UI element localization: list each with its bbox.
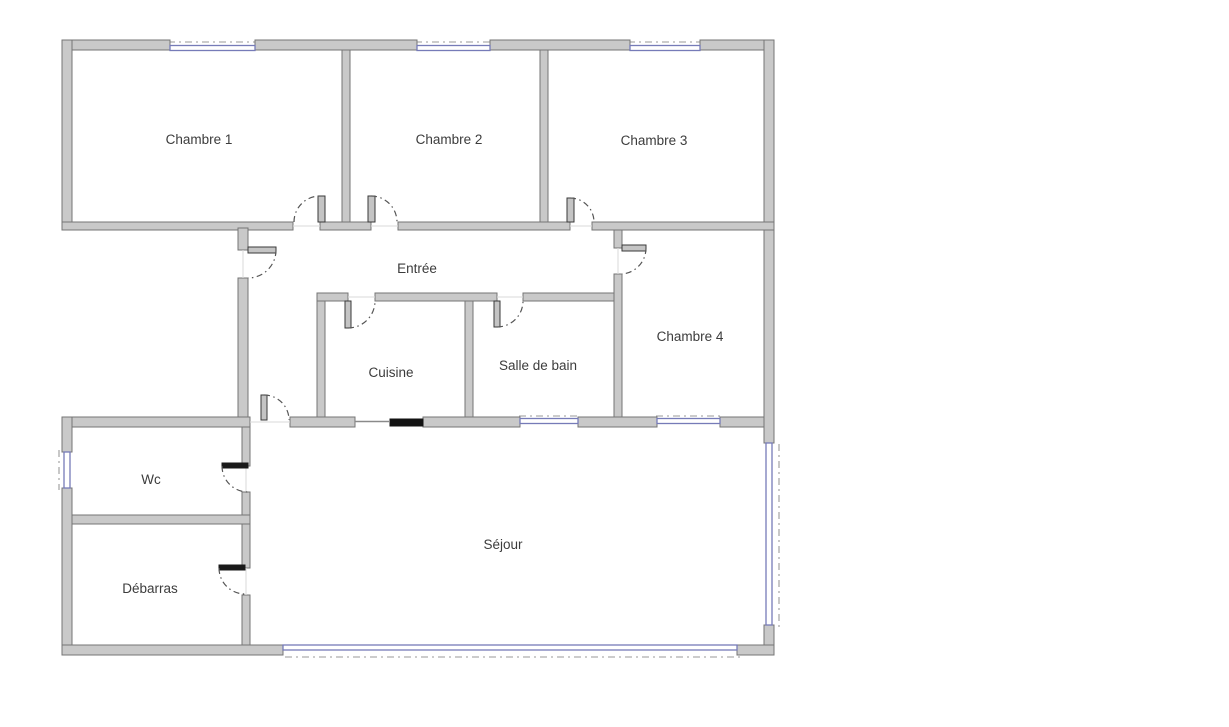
door-arc-sdb <box>497 301 523 327</box>
wall-hall-left-2 <box>238 278 248 417</box>
wall-top-2 <box>255 40 417 50</box>
door-leaf-chambre1 <box>318 196 325 222</box>
wall-left-lower-1 <box>62 417 72 452</box>
doors <box>219 196 646 594</box>
label-chambre-4: Chambre 4 <box>657 329 724 344</box>
door-arc-cuisine <box>348 301 375 328</box>
wall-right-upper <box>764 40 774 443</box>
window-chambre3 <box>630 46 700 51</box>
door-leaf-cuisine <box>345 301 351 328</box>
wall-wc-top <box>62 417 250 427</box>
wall-top-3 <box>490 40 630 50</box>
wall-cuisine-left <box>317 301 325 417</box>
wall-hall-top-3 <box>398 222 570 230</box>
wall-top-1 <box>62 40 170 50</box>
wall-divider-ch2-ch3 <box>540 50 548 222</box>
wall-sejour-top-2 <box>423 417 520 427</box>
wall-kitchen-top-1 <box>317 293 348 301</box>
door-leaf-sejour <box>261 395 267 420</box>
wall-left-upper <box>62 40 72 228</box>
door-leaf-chambre4 <box>622 245 646 251</box>
door-leaf-entrance <box>248 247 276 253</box>
thresholds <box>243 226 618 595</box>
label-salle-de-bain: Salle de bain <box>499 358 577 373</box>
wall-top-4 <box>700 40 774 50</box>
wall-bottom-1 <box>62 645 283 655</box>
door-arc-chambre4 <box>622 248 646 274</box>
wall-bottom-2 <box>737 645 774 655</box>
wall-kitchen-top-3 <box>523 293 614 301</box>
label-sejour: Séjour <box>483 537 523 552</box>
wall-hall-top-1 <box>62 222 293 230</box>
label-chambre-3: Chambre 3 <box>621 133 688 148</box>
door-arc-debarras <box>219 568 245 594</box>
wall-wc-right-1 <box>242 427 250 466</box>
wall-left-lower-2 <box>62 488 72 655</box>
label-wc: Wc <box>141 472 161 487</box>
door-leaf-chambre3 <box>567 198 574 222</box>
floorplan-page: Chambre 1 Chambre 2 Chambre 3 Entrée Cha… <box>0 0 1229 727</box>
door-leaf-sdb <box>494 301 500 327</box>
door-arc-wc <box>222 466 248 492</box>
window-chambre4 <box>657 419 720 424</box>
window-sdb <box>520 419 578 424</box>
wall-divider-ch1-ch2 <box>342 50 350 222</box>
wall-hall-left-1 <box>238 228 248 250</box>
wall-divider-cuisine-sdb <box>465 301 473 417</box>
label-debarras: Débarras <box>122 581 178 596</box>
label-cuisine: Cuisine <box>368 365 413 380</box>
wall-divider-wc-debarras <box>72 515 250 524</box>
wall-hall-top-2 <box>320 222 371 230</box>
wall-debarras-right-2 <box>242 595 250 645</box>
door-leaf-wc <box>222 463 248 468</box>
wall-ch4-left-2 <box>614 274 622 417</box>
label-chambre-1: Chambre 1 <box>166 132 233 147</box>
door-leaf-debarras <box>219 565 245 570</box>
label-chambre-2: Chambre 2 <box>416 132 483 147</box>
label-entree: Entrée <box>397 261 437 276</box>
door-arc-sejour <box>264 395 289 420</box>
window-sejour-bottom <box>283 645 737 650</box>
wall-debarras-right-1 <box>242 524 250 568</box>
window-chambre1 <box>170 46 255 51</box>
window-wc <box>64 452 70 488</box>
window-sejour-right <box>766 443 772 625</box>
wall-sejour-top-1 <box>290 417 355 427</box>
wall-ch4-left-1 <box>614 230 622 248</box>
room-labels: Chambre 1 Chambre 2 Chambre 3 Entrée Cha… <box>122 132 724 596</box>
wall-kitchen-top-2 <box>375 293 497 301</box>
door-arc-chambre1 <box>294 196 320 222</box>
floorplan-svg: Chambre 1 Chambre 2 Chambre 3 Entrée Cha… <box>0 0 1229 727</box>
wall-hall-top-4 <box>592 222 774 230</box>
door-arc-entrance <box>248 250 276 278</box>
wall-black-partition <box>390 419 423 426</box>
wall-sejour-top-4 <box>720 417 764 427</box>
window-chambre2 <box>417 46 490 51</box>
wall-wc-right-2 <box>242 492 250 515</box>
door-leaf-chambre2 <box>368 196 375 222</box>
wall-sejour-top-3 <box>578 417 657 427</box>
